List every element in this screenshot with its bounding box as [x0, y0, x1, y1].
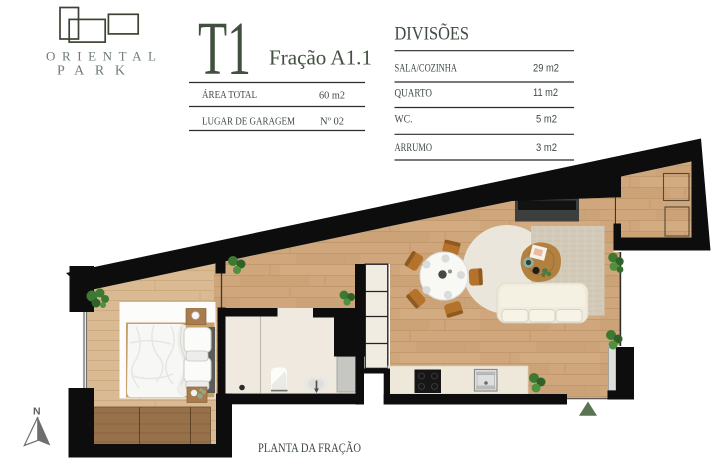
- svg-text:Fração A1.1: Fração A1.1: [269, 46, 372, 70]
- svg-text:3 m2: 3 m2: [536, 142, 557, 154]
- svg-text:ARRUMO: ARRUMO: [395, 142, 433, 154]
- svg-text:5 m2: 5 m2: [536, 114, 557, 126]
- svg-text:N: N: [33, 406, 41, 418]
- svg-text:Nº 02: Nº 02: [320, 117, 344, 128]
- svg-text:LUGAR DE GARAGEM: LUGAR DE GARAGEM: [202, 117, 296, 128]
- svg-text:60 m2: 60 m2: [319, 91, 345, 102]
- svg-text:29 m2: 29 m2: [533, 63, 559, 75]
- svg-text:SALA/COZINHA: SALA/COZINHA: [395, 62, 458, 74]
- svg-text:PARK: PARK: [57, 64, 125, 79]
- svg-text:PLANTA DA FRAÇÃO: PLANTA DA FRAÇÃO: [258, 441, 361, 455]
- svg-text:QUARTO: QUARTO: [395, 88, 433, 100]
- svg-text:T1: T1: [198, 7, 251, 91]
- svg-text:ÁREA TOTAL: ÁREA TOTAL: [202, 89, 257, 101]
- svg-text:DIVISÕES: DIVISÕES: [395, 23, 470, 45]
- svg-text:ORIENTAL: ORIENTAL: [46, 49, 156, 64]
- svg-text:11 m2: 11 m2: [533, 87, 558, 99]
- svg-text:WC.: WC.: [395, 114, 413, 126]
